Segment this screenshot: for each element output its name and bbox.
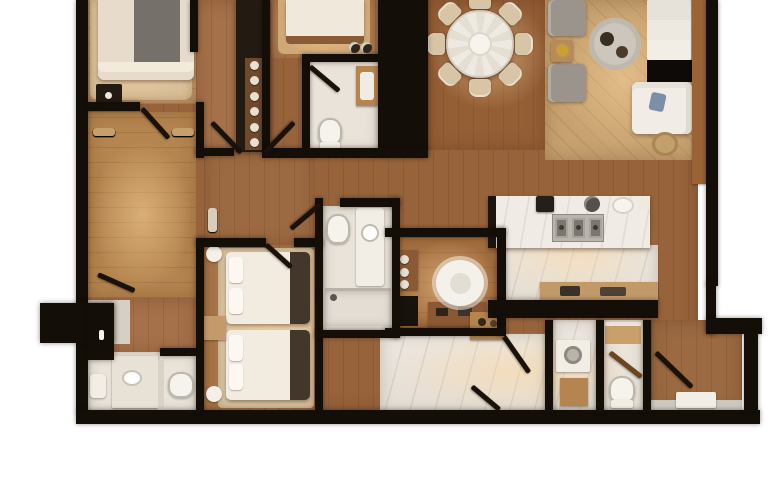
closet-rail-left [91, 126, 118, 294]
wall-bath2-west [302, 58, 310, 152]
shelf-item [400, 255, 409, 264]
wall-study-east [497, 228, 506, 336]
wall-bath3south-stub [160, 348, 196, 356]
basket [652, 132, 678, 156]
fluffy-chair-seat [450, 273, 471, 294]
dining-chair [515, 33, 533, 55]
twin-bed-b-throw [290, 330, 310, 400]
wall-study-south [385, 328, 505, 336]
nightstand-lamp [105, 92, 112, 99]
grey-sofa [548, 0, 586, 36]
wall-terrace-right [744, 332, 758, 412]
coffee-table [600, 32, 614, 46]
wall-kitchen-counter-base [488, 300, 658, 318]
fruit-bowl [612, 197, 634, 214]
wall-hall-south [262, 148, 428, 158]
dining-centerpiece [468, 32, 492, 56]
bath3-vanity [356, 208, 384, 286]
bench-item [478, 318, 486, 326]
espresso-machine [536, 196, 554, 212]
bathroom-partition [158, 360, 164, 412]
burner [572, 218, 585, 238]
pillow [229, 364, 243, 390]
display-cabinet-shelf [245, 58, 263, 150]
floor-lamp [206, 386, 222, 402]
master-bed-foot-fold [98, 62, 194, 72]
wall-bottom [76, 410, 760, 424]
dining-chair [469, 79, 491, 97]
dining-chair [427, 33, 445, 55]
vanity-sink [122, 370, 142, 386]
second-bed [286, 0, 364, 38]
wall-laundry-west [545, 320, 553, 412]
round-rug [589, 18, 641, 70]
burner [589, 218, 602, 238]
wall-right-upper [706, 0, 718, 286]
entry-door-handle [99, 330, 104, 340]
wall-laundry-east [596, 320, 604, 412]
wall-bath3-east [392, 198, 400, 338]
kettle [584, 196, 600, 212]
sideboard [647, 0, 691, 60]
wall-bath4-east [643, 320, 651, 412]
wall-study-north [385, 228, 505, 237]
wall-cabinet-back [262, 0, 270, 150]
corridor-rail [206, 206, 270, 234]
tv-console [647, 60, 695, 82]
terrace-doormat [676, 392, 716, 408]
closet-rail-right [170, 126, 197, 294]
floor-lamp [206, 246, 222, 262]
floor-plan-render [0, 0, 770, 483]
twin-nightstand [204, 316, 226, 340]
washer-door [564, 346, 582, 364]
laundry-cabinet [560, 378, 588, 406]
bath-fixture [90, 374, 106, 398]
wall-doorway-west [196, 148, 234, 156]
bath4-vanity [605, 322, 641, 344]
wall-masterbed-east [190, 0, 198, 52]
pillow [229, 288, 243, 314]
island-side-panel [488, 196, 496, 248]
counter-item [600, 287, 626, 296]
wall-left [76, 0, 88, 412]
gold-lamp [558, 46, 567, 55]
counter-item [560, 286, 580, 296]
vanity-basin [360, 72, 374, 100]
right-wall-panel [692, 0, 706, 184]
coffee-table [616, 46, 628, 58]
wall-twinroom-east [315, 198, 323, 412]
slipper [361, 42, 372, 53]
shelf-item [400, 280, 409, 289]
toilet [326, 214, 350, 244]
bath3-sink [361, 224, 379, 242]
slipper [349, 42, 360, 53]
kitchen-back-counter [540, 282, 658, 302]
bench-item [490, 320, 497, 327]
toilet-tank [611, 400, 633, 408]
grey-sofa [548, 64, 586, 102]
toilet [168, 372, 194, 398]
desk-item [436, 308, 448, 316]
pillow [229, 335, 243, 361]
burner [555, 218, 568, 238]
shower-head [330, 294, 337, 301]
wall-block-east-bath2 [378, 0, 428, 156]
wall-bath3-north [340, 198, 400, 207]
twin-bed-a-throw [290, 252, 310, 324]
jar [638, 196, 650, 210]
shelf-item [400, 268, 409, 277]
pillow [229, 257, 243, 283]
wall-twinroom-west [196, 238, 204, 412]
wall-twinroom-north-a [196, 238, 266, 247]
bottom-hallway-floor [380, 334, 545, 412]
wall-masterbed-south [88, 102, 140, 111]
dining-chair [469, 0, 491, 9]
